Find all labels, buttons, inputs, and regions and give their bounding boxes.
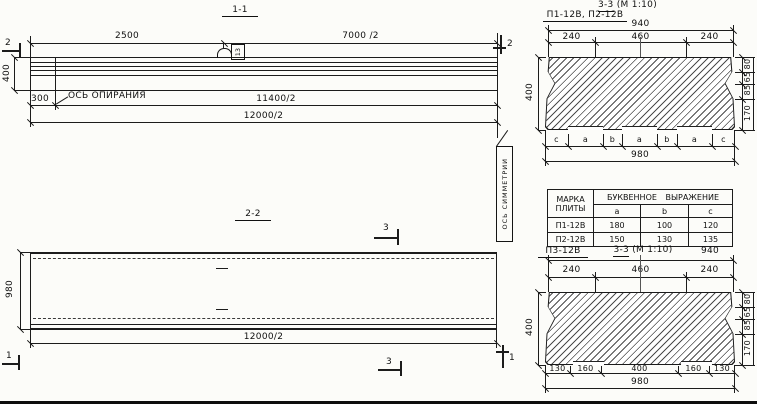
div-line — [570, 366, 571, 374]
engineering-drawing: 1-1 2500 7000 /2 2 2 13 400 300 — [0, 0, 757, 404]
ext-line — [735, 307, 755, 308]
dim-160: 160 — [570, 364, 601, 373]
dim-240: 240 — [686, 265, 733, 275]
ext-line — [595, 272, 596, 292]
ext-line — [734, 365, 735, 393]
dim-240: 240 — [548, 265, 595, 275]
dim-line — [538, 292, 539, 365]
scale-label: (М 1:10) — [632, 245, 672, 255]
dim-940: 940 — [690, 246, 730, 256]
div-line — [601, 366, 602, 374]
dim-400: 400 — [525, 312, 535, 342]
ext-line — [686, 272, 687, 292]
dim-130: 130 — [545, 364, 570, 373]
ext-line — [753, 292, 754, 365]
dim-400b: 400 — [601, 364, 678, 373]
cut-label: 3-3 — [613, 245, 629, 257]
section-3-3-title: 3-3 (М 1:10) — [598, 245, 688, 255]
dim-160: 160 — [678, 364, 709, 373]
div-line — [709, 366, 710, 374]
ext-line — [735, 365, 755, 366]
dim-980: 980 — [545, 377, 735, 387]
cross-section-hatched — [545, 292, 735, 365]
dim-line — [545, 388, 735, 389]
dim-130: 130 — [709, 364, 735, 373]
ext-line — [735, 292, 755, 293]
ext-line — [733, 255, 734, 292]
dim-170: 170 — [743, 333, 753, 363]
ext-line — [735, 319, 755, 320]
ext-line — [735, 334, 755, 335]
hatch — [546, 293, 734, 364]
ext-line — [538, 292, 546, 293]
div-line — [678, 366, 679, 374]
section-3-3-plate-p3: П3-12В 3-3 (М 1:10) 940 240 460 240 400 … — [0, 0, 757, 404]
ext-line — [548, 255, 549, 292]
ext-line — [545, 365, 546, 393]
